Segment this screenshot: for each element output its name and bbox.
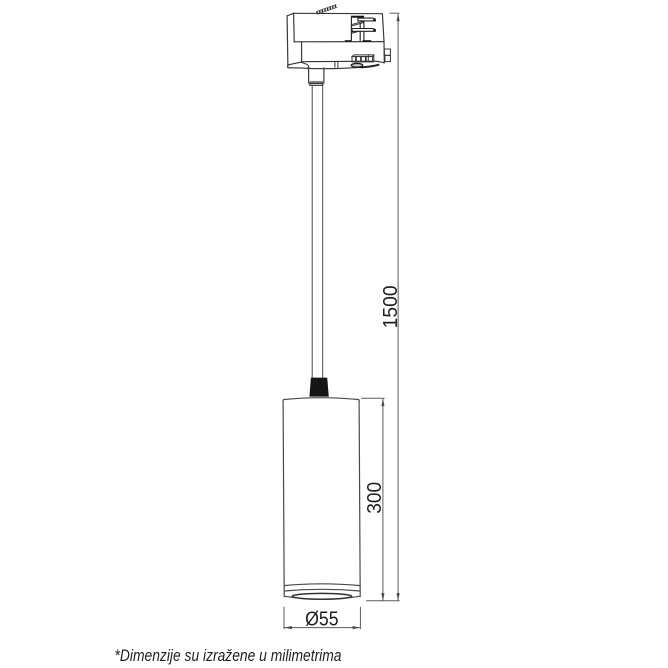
svg-text:*Dimenzije su izražene u milim: *Dimenzije su izražene u milimetrima (115, 646, 342, 665)
svg-text:Ø55: Ø55 (305, 609, 339, 631)
svg-text:1500: 1500 (380, 285, 402, 328)
svg-text:300: 300 (364, 482, 386, 514)
